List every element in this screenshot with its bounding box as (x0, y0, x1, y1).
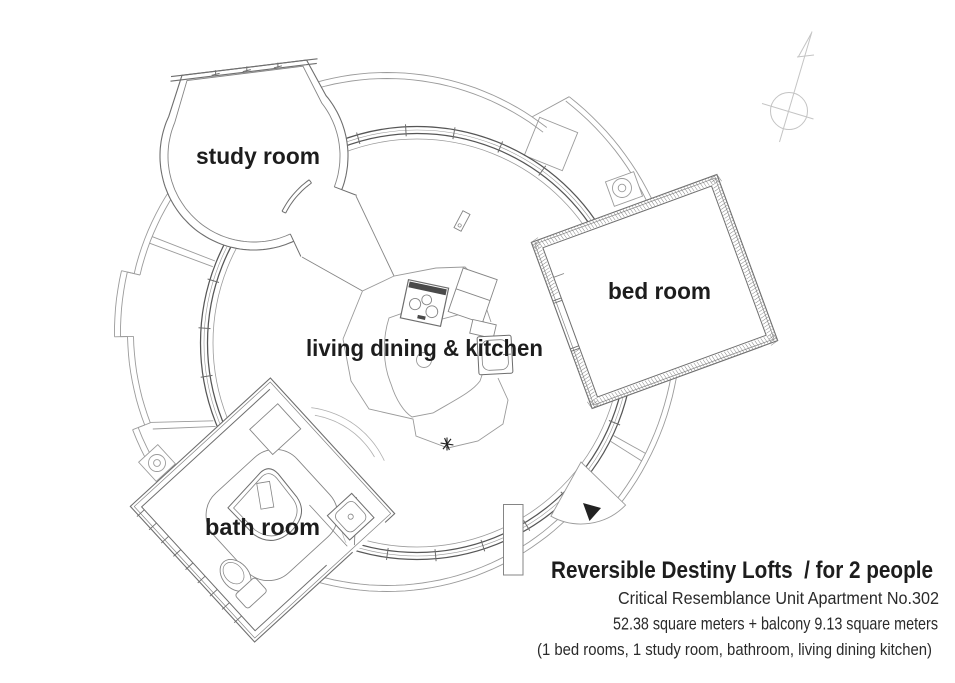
svg-text:52.38 square meters + balcony: 52.38 square meters + balcony 9.13 squar… (613, 614, 938, 634)
svg-text:(1 bed rooms, 1 study room, ba: (1 bed rooms, 1 study room, bathroom, li… (537, 640, 932, 659)
svg-text:bath room: bath room (205, 514, 320, 540)
svg-text:bed room: bed room (608, 278, 711, 304)
svg-text:Critical Resemblance Unit Apar: Critical Resemblance Unit Apartment No.3… (618, 588, 939, 608)
svg-text:Reversible Destiny Lofts / fo: Reversible Destiny Lofts / for 2 people (551, 557, 933, 584)
svg-text:study room: study room (196, 143, 320, 169)
svg-text:living dining & kitchen: living dining & kitchen (306, 335, 543, 361)
